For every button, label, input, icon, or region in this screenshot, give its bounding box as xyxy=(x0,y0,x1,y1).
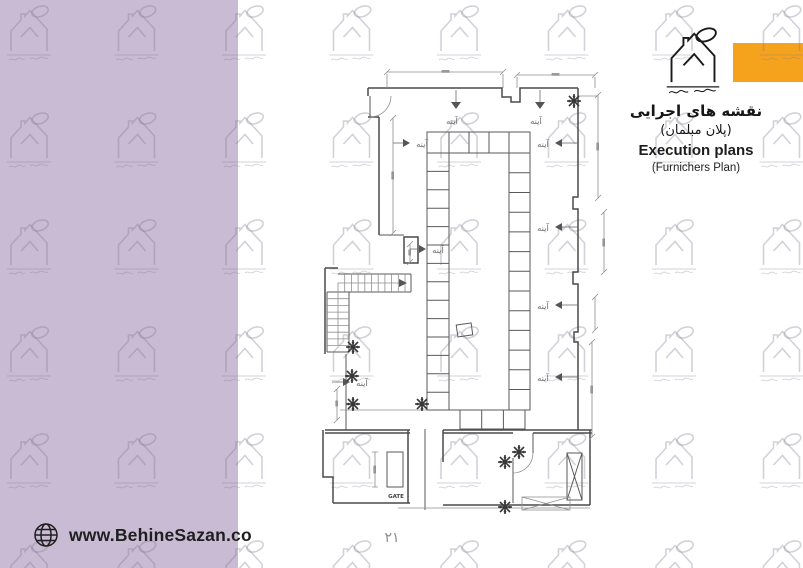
gate-label: GATE xyxy=(388,494,404,500)
mirror-callout: آینه xyxy=(393,138,429,150)
mirror-label: آینه xyxy=(356,377,368,389)
mirror-callout: آینه xyxy=(537,300,578,312)
gate-room: GATE xyxy=(323,430,410,503)
mirror-label: آینه xyxy=(537,222,549,234)
mirror-label: آینه xyxy=(537,138,549,150)
elevator-x-shaft xyxy=(567,453,582,500)
globe-icon xyxy=(33,522,59,548)
island-counter xyxy=(427,132,530,429)
mirror-callout: آینه xyxy=(537,138,578,150)
mirror-label: آینه xyxy=(432,244,444,256)
header-titles: نقشه های اجرایی (پلان مبلمان) Execution … xyxy=(626,101,766,176)
door-arc xyxy=(370,96,391,117)
website-link[interactable]: www.BehineSazan.co xyxy=(69,525,252,546)
mirror-callout: آینه xyxy=(530,90,545,127)
brand-logo xyxy=(663,26,723,100)
elevator-room xyxy=(398,430,592,510)
island-fixture xyxy=(456,323,473,337)
page-subtitle-fa: (پلان مبلمان) xyxy=(626,121,766,141)
mirror-label: آینه xyxy=(446,115,458,127)
page-number: ۲۱ xyxy=(372,530,412,546)
mirror-callout: آینه xyxy=(537,372,578,384)
staircase xyxy=(327,274,411,352)
page-subtitle-en: (Furnichers Plan) xyxy=(626,160,766,176)
mirror-callout: آینه xyxy=(537,222,578,234)
footer: www.BehineSazan.co xyxy=(33,522,252,548)
mirror-callout: آینه xyxy=(446,90,461,127)
page-title-fa: نقشه های اجرایی xyxy=(626,101,766,121)
document-page: GATE xyxy=(0,0,803,568)
mirror-annotations: آینه آینه آینه آینه آینه آینه آینه آینه … xyxy=(332,90,578,389)
mirror-label: آینه xyxy=(416,138,428,150)
mirror-label: آینه xyxy=(530,115,542,127)
page-title-en: Execution plans xyxy=(626,141,766,160)
mirror-label: آینه xyxy=(537,300,549,312)
mirror-label: آینه xyxy=(537,372,549,384)
